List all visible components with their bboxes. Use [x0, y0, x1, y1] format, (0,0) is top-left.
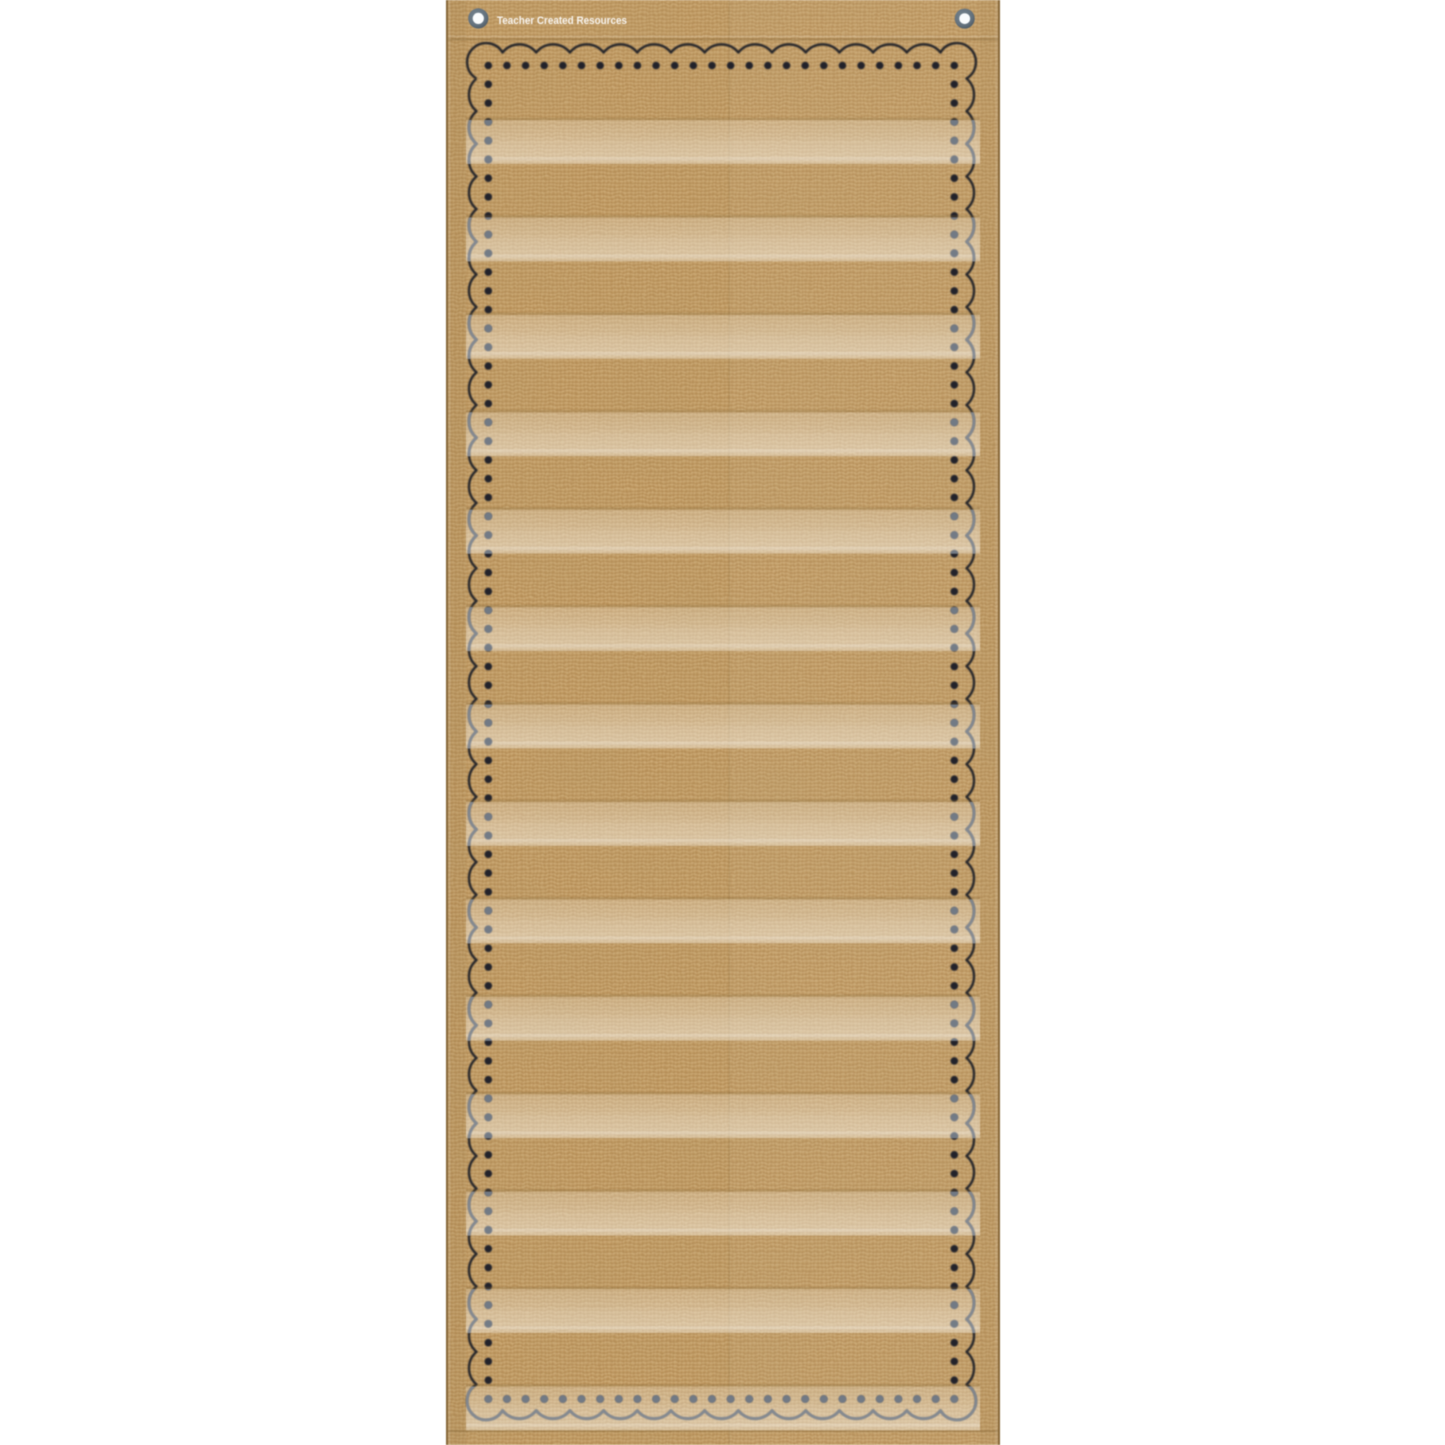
- svg-text:Teacher Created Resources: Teacher Created Resources: [497, 15, 627, 27]
